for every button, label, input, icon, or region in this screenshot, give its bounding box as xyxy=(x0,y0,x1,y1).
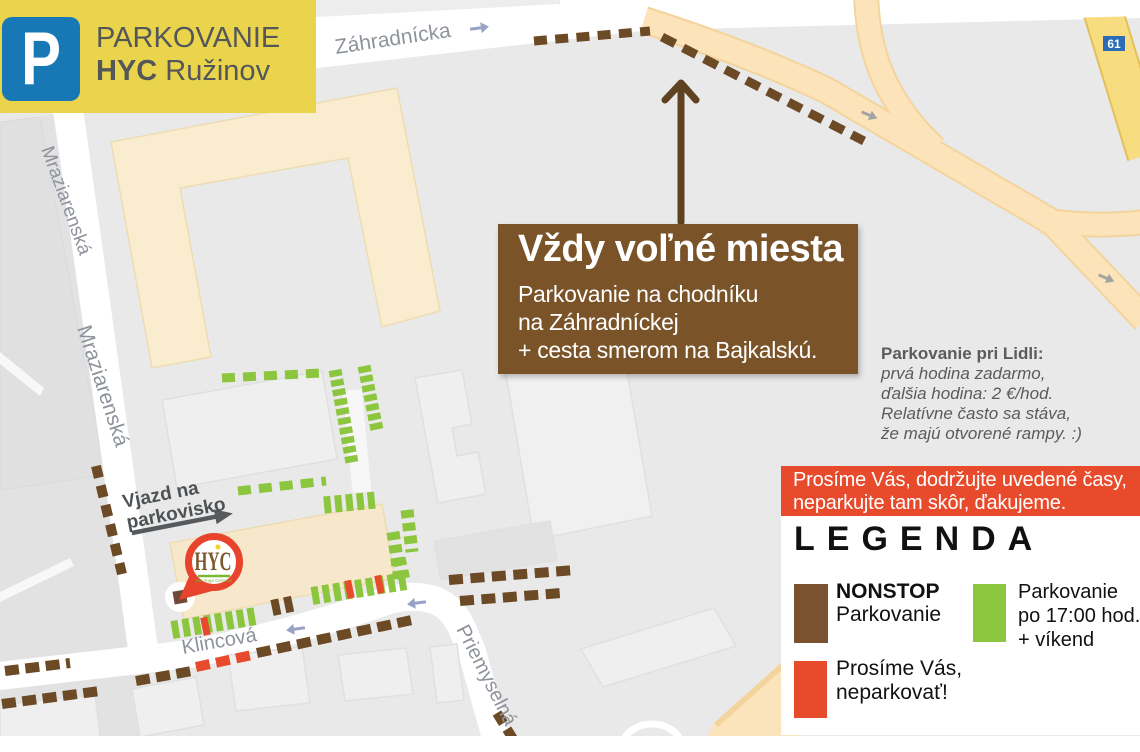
svg-text:61: 61 xyxy=(1107,37,1121,51)
svg-text:HYC: HYC xyxy=(195,547,232,576)
svg-text:Hot Yoga Centrum: Hot Yoga Centrum xyxy=(196,578,233,583)
